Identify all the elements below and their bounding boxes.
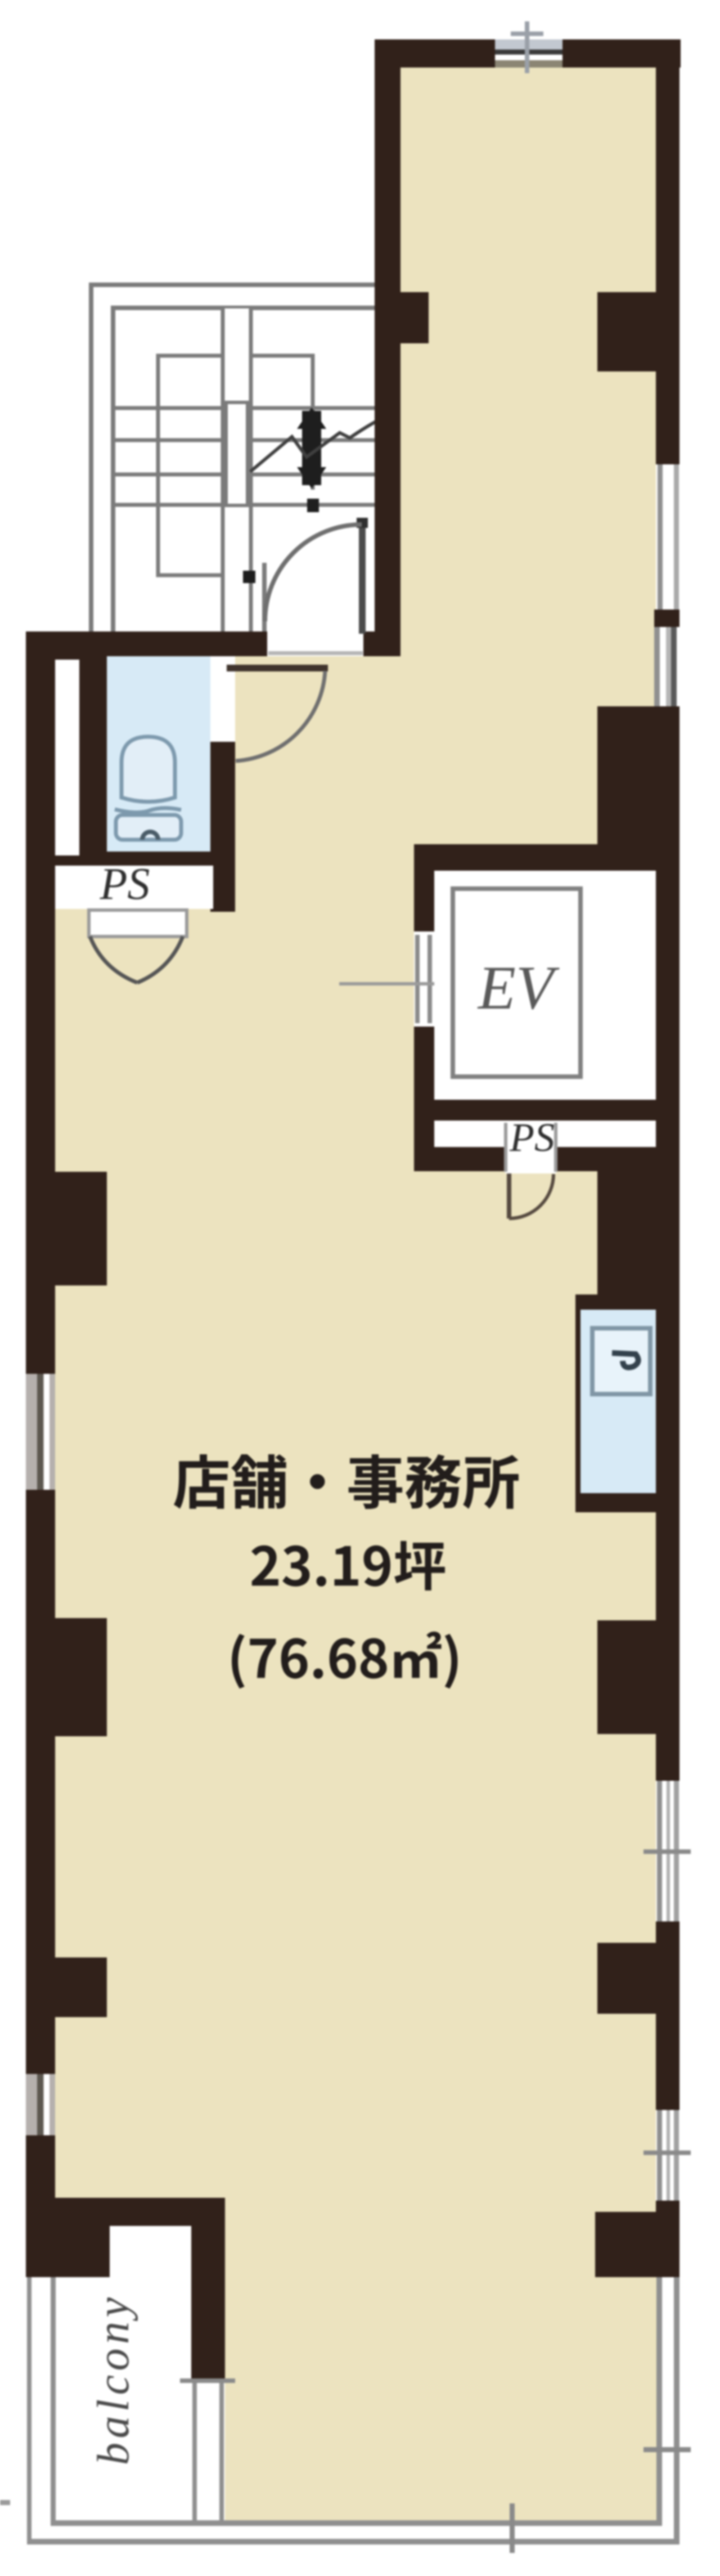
svg-text:PS: PS bbox=[509, 1115, 555, 1160]
svg-text:PS: PS bbox=[100, 859, 150, 909]
svg-text:EV: EV bbox=[477, 953, 560, 1022]
